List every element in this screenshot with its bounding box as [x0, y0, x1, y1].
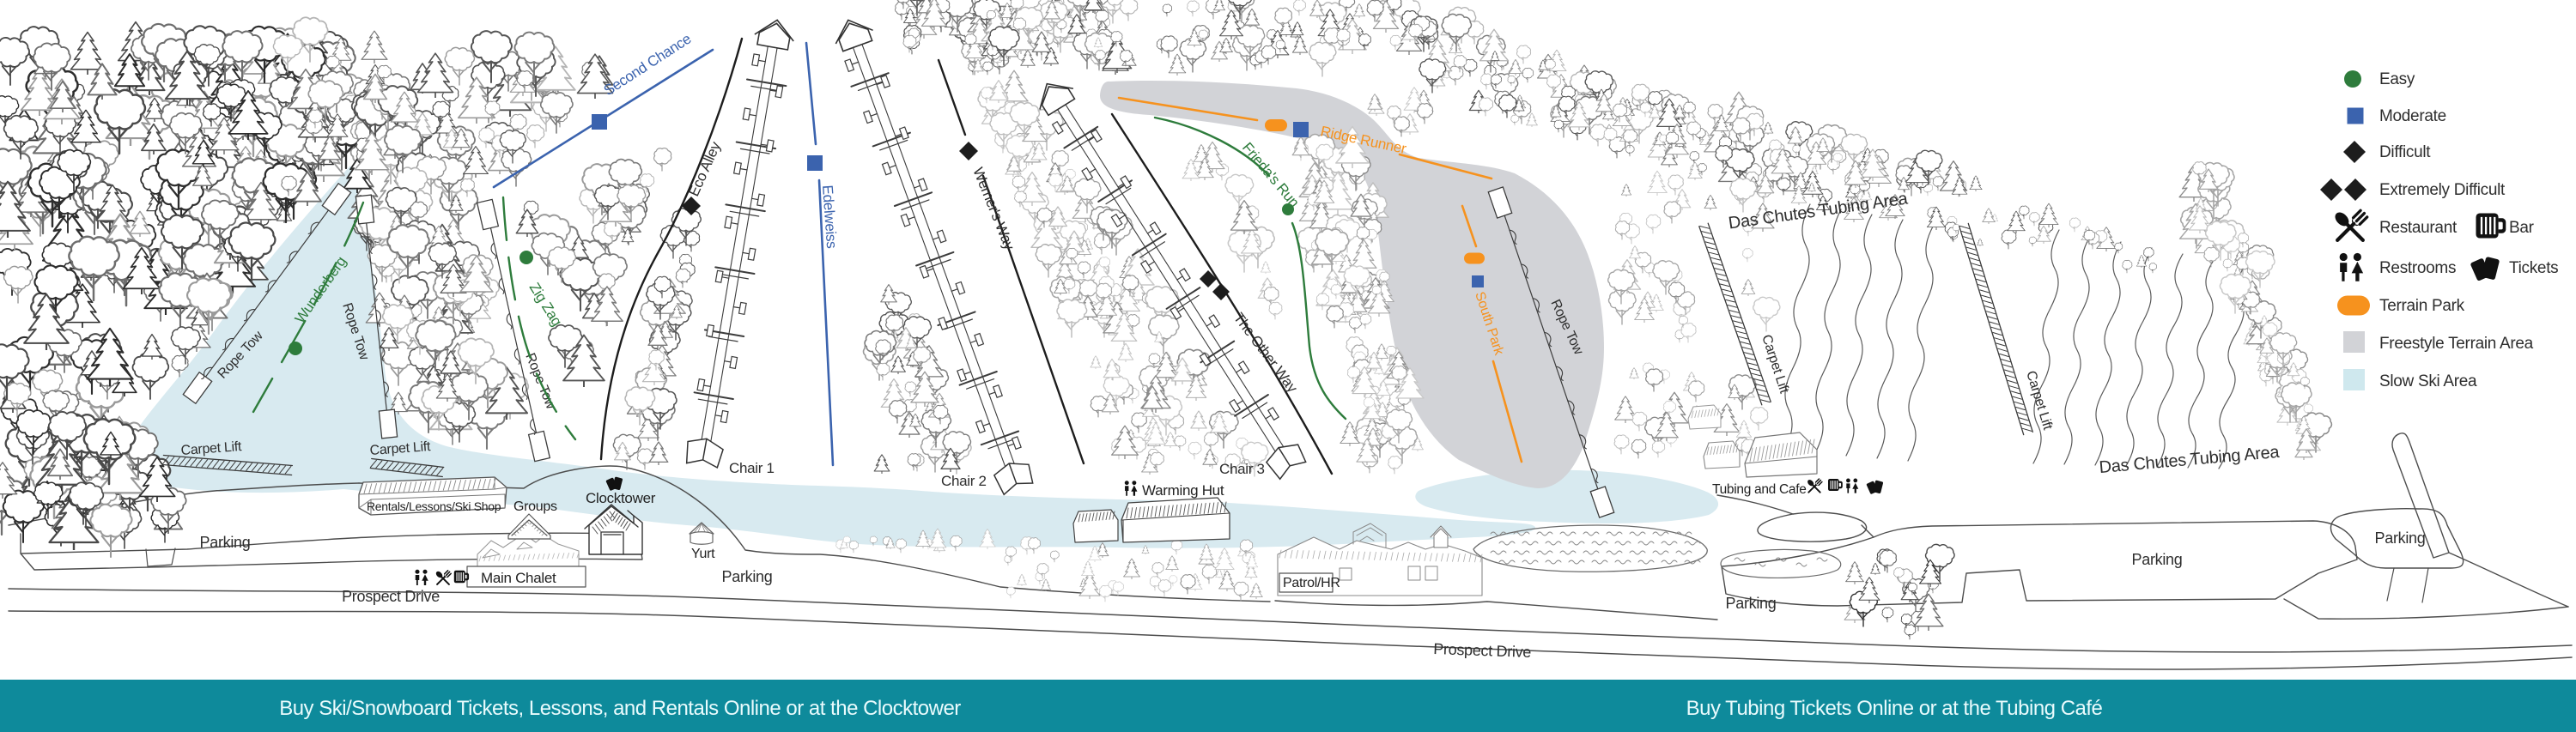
svg-text:Patrol/HR: Patrol/HR [1283, 576, 1340, 590]
svg-text:Difficult: Difficult [2379, 143, 2431, 161]
svg-text:Chair 3: Chair 3 [1219, 461, 1265, 477]
svg-text:Groups: Groups [513, 499, 557, 514]
svg-text:Buy Ski/Snowboard Tickets, Les: Buy Ski/Snowboard Tickets, Lessons, and … [279, 697, 961, 720]
svg-text:Parking: Parking [722, 568, 773, 585]
svg-text:Rentals/Lessons/Ski Shop: Rentals/Lessons/Ski Shop [367, 499, 501, 513]
svg-text:Buy Tubing Tickets Online or a: Buy Tubing Tickets Online or at the Tubi… [1686, 697, 2103, 720]
svg-text:Main Chalet: Main Chalet [481, 570, 556, 586]
svg-text:Yurt: Yurt [691, 547, 715, 561]
svg-text:Warming Hut: Warming Hut [1142, 482, 1224, 499]
svg-text:Clocktower: Clocktower [586, 490, 656, 506]
svg-text:Parking: Parking [1726, 595, 1777, 612]
svg-text:Parking: Parking [2375, 529, 2426, 547]
svg-text:Moderate: Moderate [2379, 107, 2446, 125]
svg-text:Chair 1: Chair 1 [729, 460, 775, 476]
svg-text:Easy: Easy [2379, 70, 2415, 88]
svg-text:Restaurant: Restaurant [2379, 219, 2458, 237]
svg-text:Restrooms: Restrooms [2379, 259, 2456, 277]
svg-text:Tubing and Cafe: Tubing and Cafe [1712, 482, 1807, 497]
svg-text:Chair 2: Chair 2 [941, 473, 987, 489]
svg-text:Prospect Drive: Prospect Drive [342, 588, 440, 605]
svg-text:Tickets: Tickets [2509, 259, 2558, 277]
svg-text:Parking: Parking [200, 534, 251, 551]
svg-text:Extremely Difficult: Extremely Difficult [2379, 181, 2506, 199]
svg-text:Terrain Park: Terrain Park [2379, 297, 2465, 315]
svg-text:Bar: Bar [2509, 219, 2535, 237]
svg-text:Freestyle Terrain Area: Freestyle Terrain Area [2379, 335, 2534, 353]
svg-text:Prospect Drive: Prospect Drive [1433, 640, 1532, 661]
svg-text:Slow Ski Area: Slow Ski Area [2379, 372, 2477, 390]
svg-text:Parking: Parking [2132, 551, 2183, 568]
